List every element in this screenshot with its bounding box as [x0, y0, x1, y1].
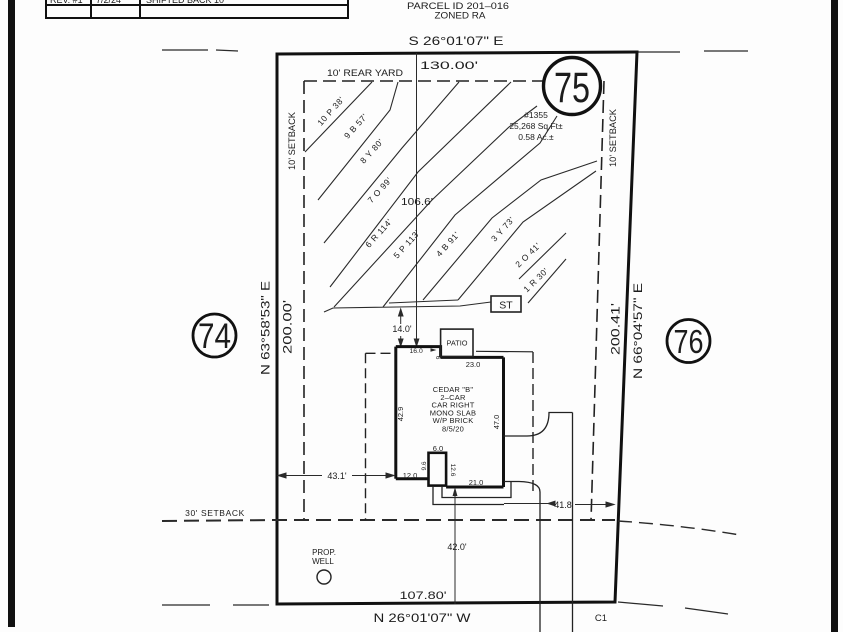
svg-text:74: 74 [198, 317, 231, 356]
svg-text:N 66°04'57" E: N 66°04'57" E [631, 283, 645, 379]
svg-text:41.8: 41.8 [554, 500, 572, 510]
svg-text:76: 76 [674, 323, 704, 360]
svg-text:10' REAR YARD: 10' REAR YARD [327, 68, 404, 78]
svg-text:8/5/20: 8/5/20 [442, 425, 464, 434]
svg-text:47.0: 47.0 [492, 415, 501, 430]
svg-text:#1355: #1355 [524, 110, 548, 120]
svg-text:0.58 Ac.±: 0.58 Ac.± [518, 132, 554, 142]
svg-text:SHIFTED BACK 10': SHIFTED BACK 10' [146, 0, 226, 5]
svg-text:16.0: 16.0 [410, 348, 423, 355]
svg-text:C1: C1 [595, 613, 607, 624]
svg-text:7/2/24: 7/2/24 [96, 0, 121, 5]
svg-text:21.0: 21.0 [469, 478, 484, 487]
svg-text:10' SETBACK: 10' SETBACK [608, 109, 618, 167]
svg-text:REV. #1: REV. #1 [50, 0, 83, 5]
svg-text:6.0: 6.0 [433, 444, 443, 453]
svg-text:S 26°01'07" E: S 26°01'07" E [409, 34, 504, 48]
svg-text:N 26°01'07" W: N 26°01'07" W [374, 611, 472, 625]
svg-text:42.9: 42.9 [396, 407, 405, 422]
svg-text:10' SETBACK: 10' SETBACK [287, 112, 297, 170]
svg-text:42.0': 42.0' [447, 542, 467, 552]
svg-text:25,268 Sq.Ft±: 25,268 Sq.Ft± [509, 121, 563, 131]
svg-text:WELL: WELL [312, 557, 334, 566]
svg-text:43.1': 43.1' [327, 471, 347, 481]
svg-text:N 63°58'53" E: N 63°58'53" E [259, 281, 273, 375]
svg-text:130.00': 130.00' [420, 60, 478, 72]
svg-text:200.00': 200.00' [281, 300, 295, 354]
svg-text:ZONED RA: ZONED RA [435, 11, 486, 21]
svg-text:30' SETBACK: 30' SETBACK [185, 508, 245, 518]
svg-text:9.6: 9.6 [421, 461, 428, 470]
svg-text:106.6': 106.6' [401, 197, 433, 208]
svg-text:PARCEL ID 201–016: PARCEL ID 201–016 [407, 1, 509, 11]
svg-text:14.0': 14.0' [392, 324, 412, 334]
svg-text:ST: ST [499, 300, 513, 312]
svg-text:12.6: 12.6 [449, 464, 456, 477]
svg-text:200.41': 200.41' [609, 303, 623, 355]
svg-text:PROP.: PROP. [312, 548, 336, 557]
svg-text:75: 75 [554, 64, 590, 112]
svg-text:PATIO: PATIO [447, 341, 469, 348]
svg-text:107.80': 107.80' [400, 590, 447, 602]
svg-text:12.0: 12.0 [403, 471, 418, 480]
svg-text:23.0: 23.0 [466, 360, 481, 369]
